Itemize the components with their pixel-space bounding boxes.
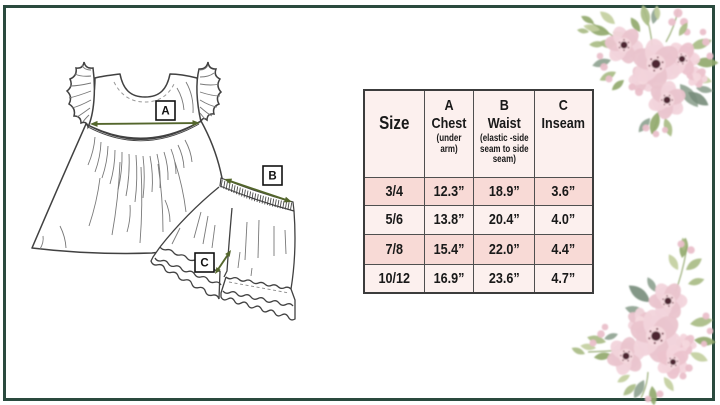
svg-text:B: B [268, 171, 276, 183]
svg-text:A: A [161, 106, 169, 118]
svg-text:C: C [200, 258, 208, 270]
